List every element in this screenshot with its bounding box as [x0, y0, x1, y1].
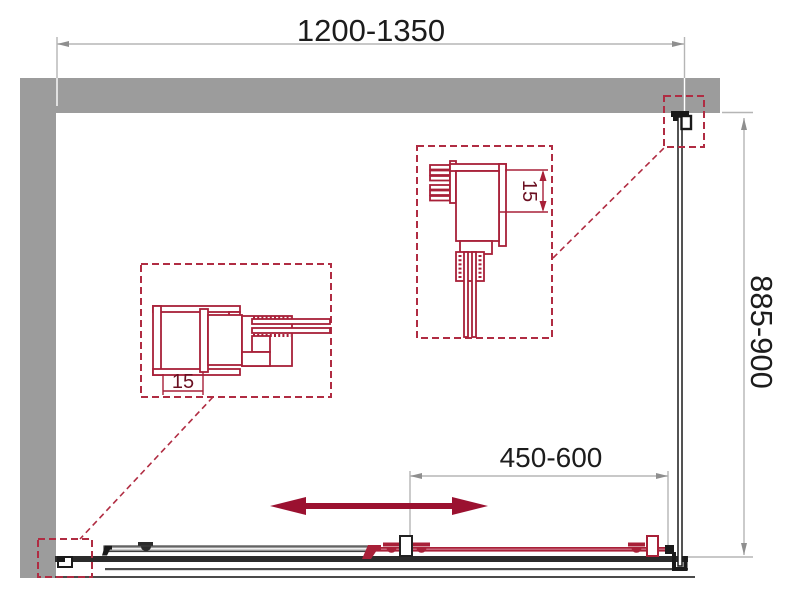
detail-view-top-profile: 15: [417, 146, 552, 338]
wall-bracket-hook: [682, 116, 692, 129]
sliding-door: [362, 536, 674, 559]
glass-edge-top: [252, 319, 330, 324]
dimension-door-travel-label: 450-600: [500, 442, 603, 473]
wall-left: [20, 78, 56, 578]
bracket-right-leg: [684, 556, 688, 571]
serration-tooth: [430, 196, 450, 201]
adjust-profile-bar: [200, 309, 208, 372]
dim-arrow-left: [57, 41, 69, 47]
profile-web: [153, 306, 161, 375]
roller-bar: [628, 543, 645, 547]
technical-drawing-canvas: 1200-1350 885-900 450-600: [0, 0, 800, 593]
slide-direction-arrow: [270, 497, 488, 515]
dimension-depth: 885-900: [688, 113, 779, 558]
profile-top-bar: [450, 164, 506, 171]
arrow-shaft: [303, 503, 455, 509]
glass-edge-right: [472, 252, 476, 337]
dim15-arrow-down: [540, 201, 547, 212]
dimension-width-label: 1200-1350: [297, 13, 445, 48]
clamp-bar: [138, 542, 153, 546]
dimension-door-travel: 450-600: [410, 442, 668, 546]
serration-tooth: [430, 165, 450, 170]
holder-step-upper: [252, 336, 270, 352]
roller-wheel: [417, 548, 427, 553]
dim-arrow-right: [672, 41, 684, 47]
profile-top-flange: [153, 306, 240, 312]
glass-edge-bottom: [252, 328, 330, 333]
dim-arrow-up: [741, 118, 747, 130]
serration-tooth: [430, 171, 450, 176]
glass-edge-left: [464, 252, 468, 337]
arrow-head-left: [270, 497, 306, 515]
bottom-track-assembly: [55, 536, 695, 578]
adjust-profile-body: [208, 315, 242, 365]
drawing-svg: 1200-1350 885-900 450-600: [0, 0, 800, 593]
wall-bracket-tab: [58, 557, 65, 562]
roller-wheel: [632, 548, 642, 553]
detail-view-left-profile: 15: [141, 264, 331, 397]
fixed-glass-panel-right: [678, 117, 682, 566]
wall-serration: [430, 165, 450, 201]
roller-bar: [413, 543, 430, 547]
profile-body: [456, 171, 499, 241]
tray-edge-line: [105, 568, 688, 570]
serration-tooth: [430, 185, 450, 190]
detail-top-adjustment-label: 15: [518, 180, 540, 202]
profile-bottom-flange: [153, 369, 240, 375]
dimension-depth-label: 885-900: [744, 275, 779, 389]
dim-arrow-left: [410, 473, 422, 479]
holder-step-lower: [242, 352, 270, 366]
tray-outline: [55, 576, 695, 578]
fixed-glass-panel-bottom: [102, 542, 372, 556]
leader-line-left-detail: [80, 397, 213, 539]
wall-bracket-nub: [673, 117, 678, 121]
roller-bar: [383, 543, 400, 547]
serration-tooth: [430, 191, 450, 196]
dim-arrow-right: [656, 473, 668, 479]
profile-right-web: [499, 164, 506, 246]
door-carrier-right: [647, 536, 658, 556]
sliding-door-highlight: [369, 549, 666, 550]
arrow-head-right: [452, 497, 488, 515]
dim-arrow-down: [741, 543, 747, 555]
roller-wheel: [387, 548, 397, 553]
door-carrier-left: [400, 536, 412, 556]
detail-left-adjustment-label: 15: [172, 371, 194, 393]
leader-line-top-detail: [553, 148, 664, 258]
serration-tooth: [430, 176, 450, 181]
wall-top: [20, 78, 720, 113]
